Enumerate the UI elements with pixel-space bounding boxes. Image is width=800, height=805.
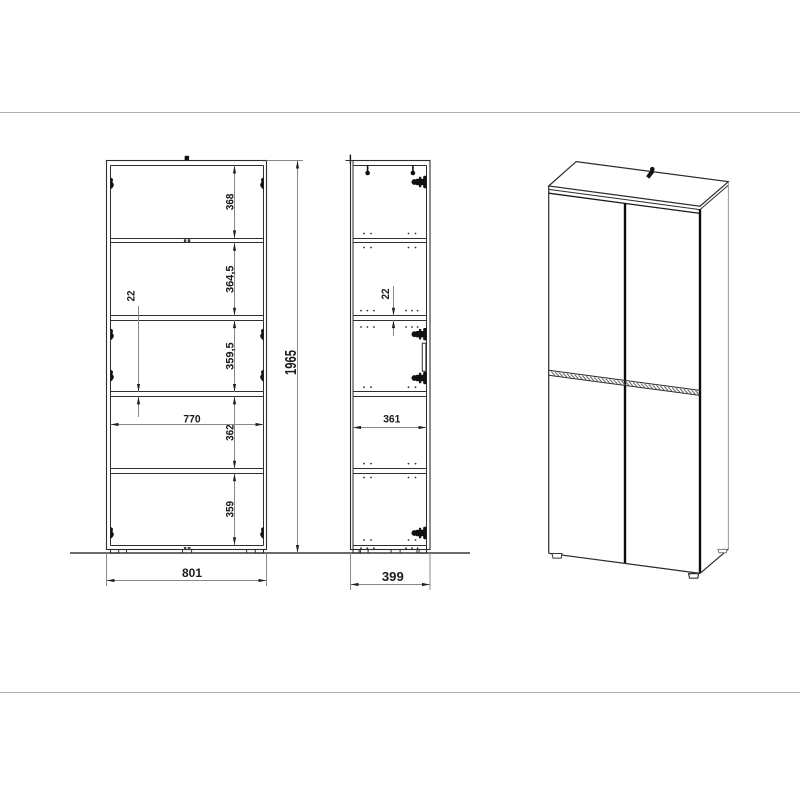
svg-text:364,5: 364,5 [224, 265, 236, 293]
svg-text:362: 362 [224, 424, 236, 441]
svg-text:399: 399 [382, 569, 404, 584]
svg-text:1965: 1965 [283, 350, 300, 375]
svg-text:22: 22 [380, 289, 392, 300]
svg-text:368: 368 [224, 194, 236, 211]
svg-text:770: 770 [183, 414, 200, 426]
svg-text:361: 361 [383, 414, 400, 426]
svg-text:359: 359 [224, 501, 236, 518]
svg-text:22: 22 [126, 291, 138, 302]
svg-text:359,5: 359,5 [224, 342, 236, 370]
svg-text:801: 801 [182, 568, 203, 580]
